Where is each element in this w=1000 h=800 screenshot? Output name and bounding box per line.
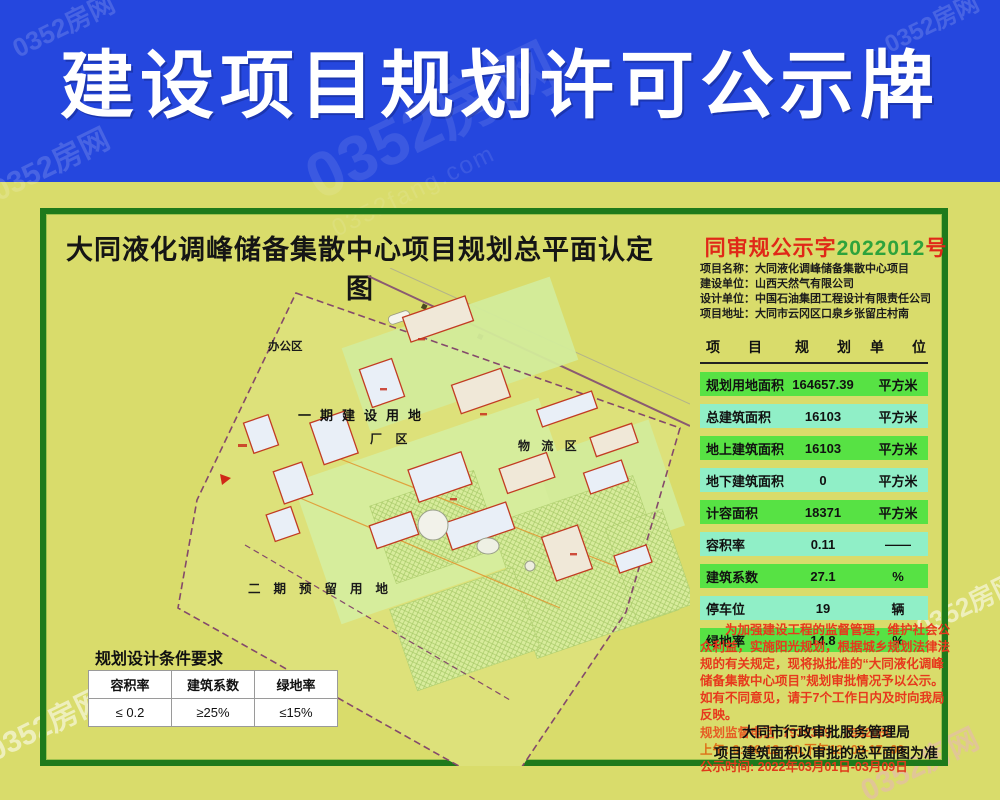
row-unit: 平方米 <box>868 375 928 394</box>
info-project-address: 项目地址：大同市云冈区口泉乡张留庄村南 <box>700 307 960 322</box>
row-unit: 平方米 <box>868 439 928 458</box>
label-logistics-area: 物 流 区 <box>518 438 581 453</box>
row-value: 27.1 <box>778 569 868 584</box>
row-item: 建筑系数 <box>700 567 778 586</box>
label-factory-area: 厂 区 <box>370 432 412 446</box>
table-row: 容积率 0.11 —— <box>700 532 928 556</box>
row-item: 规划用地面积 <box>700 375 778 394</box>
table-row: 地上建筑面积 16103 平方米 <box>700 436 928 460</box>
row-value: 16103 <box>778 409 868 424</box>
cond-header-far: 容积率 <box>89 671 172 699</box>
row-value: 16103 <box>778 441 868 456</box>
indicator-table-header: 项 目 规 划 单 位 <box>700 334 928 364</box>
label-phase1-area: 一期建设用地 <box>298 408 430 423</box>
page-title: 建设项目规划许可公示牌 <box>0 38 1000 134</box>
row-unit: —— <box>868 537 928 552</box>
conditions-table: 容积率 建筑系数 绿地率 ≤ 0.2 ≥25% ≤15% <box>88 670 338 727</box>
table-row: 地下建筑面积 0 平方米 <box>700 468 928 492</box>
row-value: 18371 <box>778 505 868 520</box>
cond-value-green: ≤15% <box>255 699 338 727</box>
project-info: 项目名称：大同液化调峰储备集散中心项目 建设单位：山西天然气有限公司 设计单位：… <box>700 262 960 322</box>
agency-name: 大同市行政审批服务管理局 <box>700 722 952 743</box>
row-item: 容积率 <box>700 535 778 554</box>
cond-value-coverage: ≥25% <box>172 699 255 727</box>
label-office-area: 办公区 <box>268 339 303 353</box>
row-value: 0.11 <box>778 537 868 552</box>
row-value: 19 <box>778 601 868 616</box>
col-header-item: 项 目 <box>700 337 778 357</box>
table-row: 停车位 19 辆 <box>700 596 928 620</box>
table-row: 规划用地面积 164657.39 平方米 <box>700 372 928 396</box>
cond-header-green: 绿地率 <box>255 671 338 699</box>
label-phase2-area: 二期预留用地 <box>248 581 401 596</box>
col-header-unit: 单 位 <box>868 337 928 357</box>
row-value: 164657.39 <box>778 377 868 392</box>
notice-number-value: 2022012 <box>837 237 926 260</box>
table-row: 计容面积 18371 平方米 <box>700 500 928 524</box>
cond-value-far: ≤ 0.2 <box>89 699 172 727</box>
notice-board: 建设项目规划许可公示牌 0352房网 0352房网0352fang.com 03… <box>0 0 1000 800</box>
conditions-title: 规划设计条件要求 <box>95 645 223 669</box>
row-value: 0 <box>778 473 868 488</box>
row-unit: 平方米 <box>868 503 928 522</box>
col-header-value: 规 划 <box>778 337 868 357</box>
footer: 大同市行政审批服务管理局 项目建筑面积以审批的总平面图为准 <box>700 722 952 764</box>
table-row: 建筑系数 27.1 % <box>700 564 928 588</box>
info-construction-unit: 建设单位：山西天然气有限公司 <box>700 277 960 292</box>
cond-header-coverage: 建筑系数 <box>172 671 255 699</box>
info-design-unit: 设计单位：中国石油集团工程设计有限责任公司 <box>700 292 960 307</box>
table-row: 总建筑面积 16103 平方米 <box>700 404 928 428</box>
indicator-table: 项 目 规 划 单 位 规划用地面积 164657.39 平方米 总建筑面积 1… <box>700 334 928 652</box>
notice-number-suffix: 号 <box>925 237 947 260</box>
row-unit: 辆 <box>868 599 928 618</box>
row-item: 总建筑面积 <box>700 407 778 426</box>
row-unit: 平方米 <box>868 407 928 426</box>
notice-number-prefix: 同审规公示字 <box>705 237 837 260</box>
row-item: 地下建筑面积 <box>700 471 778 490</box>
banner: 建设项目规划许可公示牌 <box>0 0 1000 182</box>
row-unit: % <box>868 569 928 584</box>
footer-note: 项目建筑面积以审批的总平面图为准 <box>700 743 952 764</box>
announcement-paragraph: 为加强建设工程的监督管理，维护社会公众利益，实施阳光规划，根据城乡规划法律法规的… <box>700 622 952 724</box>
row-unit: 平方米 <box>868 471 928 490</box>
row-item: 计容面积 <box>700 503 778 522</box>
row-item: 地上建筑面积 <box>700 439 778 458</box>
info-project-name: 项目名称：大同液化调峰储备集散中心项目 <box>700 262 960 277</box>
notice-number: 同审规公示字2022012号 <box>700 232 952 262</box>
row-item: 停车位 <box>700 599 778 618</box>
